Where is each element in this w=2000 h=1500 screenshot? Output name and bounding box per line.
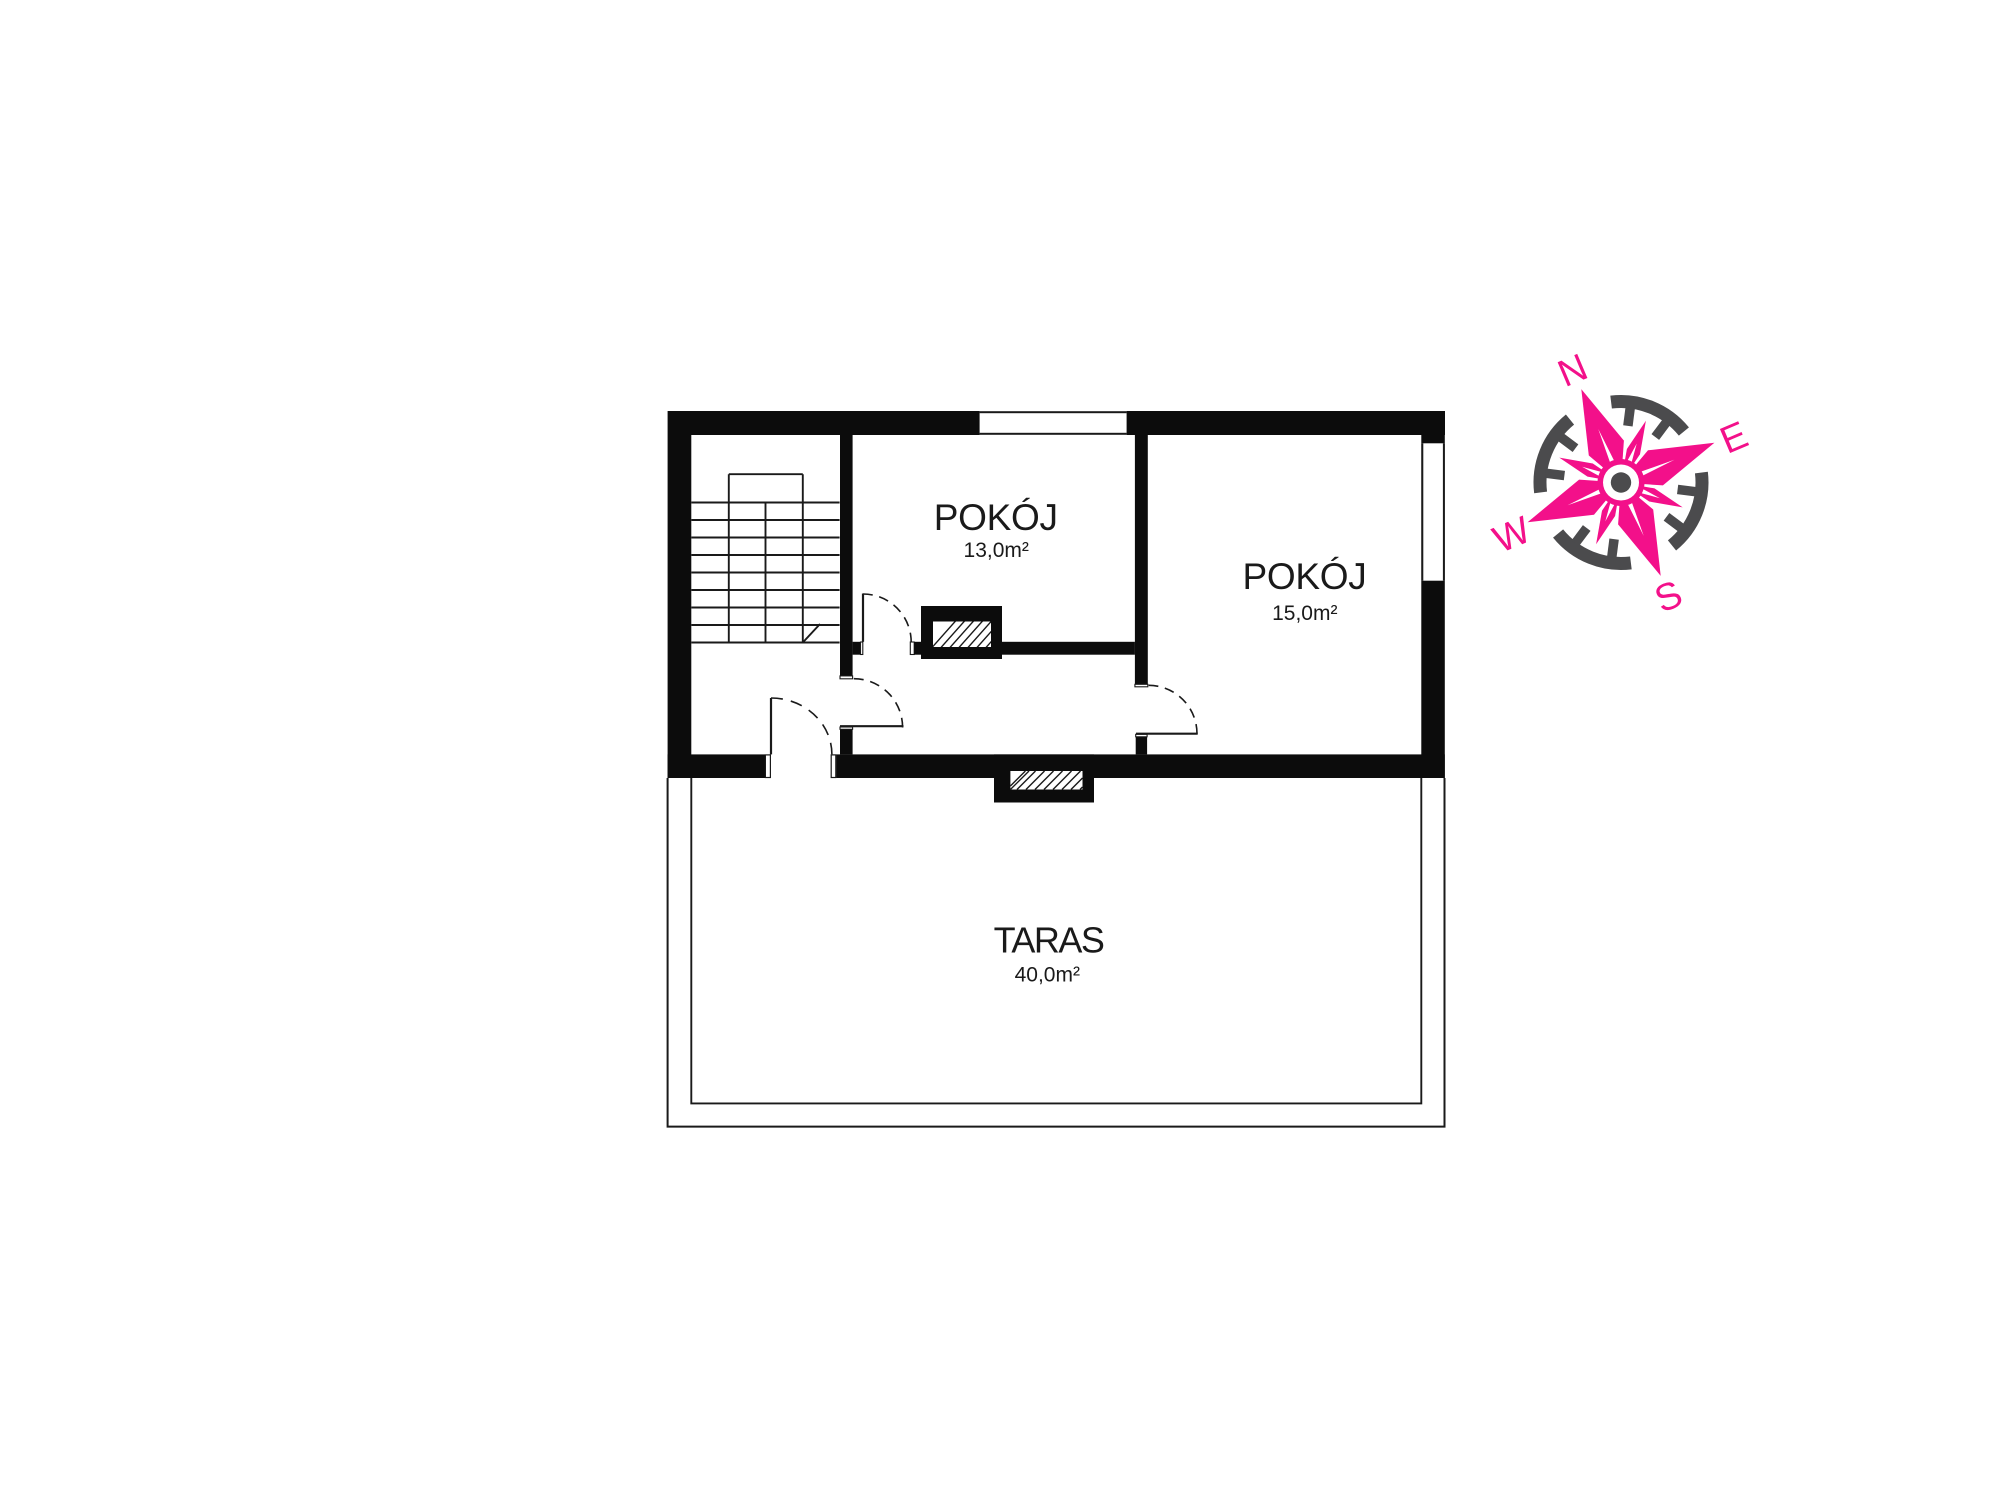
svg-text:TARAS: TARAS xyxy=(994,920,1104,961)
svg-text:W: W xyxy=(1487,509,1537,562)
svg-text:N: N xyxy=(1552,346,1594,395)
svg-text:40,0m²: 40,0m² xyxy=(1015,964,1080,987)
svg-text:POKÓJ: POKÓJ xyxy=(1243,556,1367,597)
svg-text:S: S xyxy=(1649,573,1689,622)
svg-text:15,0m²: 15,0m² xyxy=(1272,602,1337,625)
svg-text:13,0m²: 13,0m² xyxy=(964,539,1029,562)
svg-text:E: E xyxy=(1714,414,1754,463)
svg-text:POKÓJ: POKÓJ xyxy=(934,497,1058,538)
